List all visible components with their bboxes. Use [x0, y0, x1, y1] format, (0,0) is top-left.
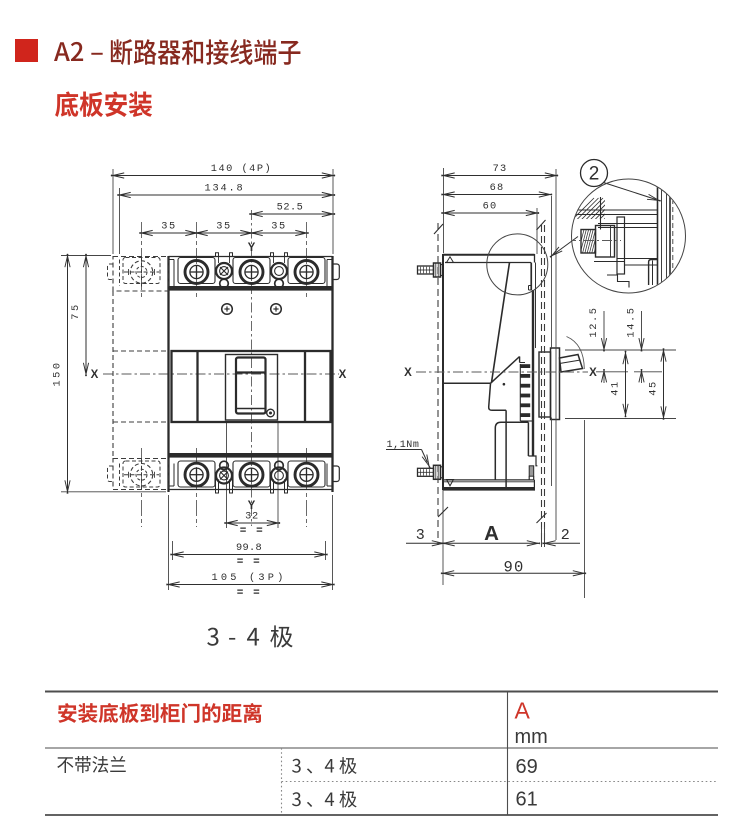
svg-text:A: A [515, 698, 531, 724]
svg-text:A: A [484, 522, 499, 545]
svg-text:32: 32 [245, 511, 259, 523]
svg-text:140 (4P): 140 (4P) [211, 163, 272, 175]
svg-text:14.5: 14.5 [626, 306, 638, 337]
svg-text:45: 45 [648, 380, 660, 396]
svg-text:3: 3 [416, 527, 427, 544]
svg-text:= =: = = [240, 526, 265, 538]
svg-text:mm: mm [515, 726, 548, 748]
svg-text:X: X [91, 369, 99, 381]
svg-text:150: 150 [52, 360, 64, 386]
svg-text:2: 2 [589, 164, 600, 185]
svg-text:X: X [404, 367, 412, 379]
svg-text:90: 90 [503, 559, 524, 577]
svg-text:134.8: 134.8 [205, 183, 245, 195]
svg-text:41: 41 [610, 380, 622, 396]
svg-text:73: 73 [493, 163, 508, 175]
svg-text:69: 69 [516, 756, 538, 778]
svg-text:60: 60 [483, 201, 498, 213]
svg-text:52.5: 52.5 [277, 202, 304, 214]
svg-text:Y: Y [248, 242, 256, 254]
svg-text:75: 75 [70, 302, 82, 319]
svg-text:X: X [339, 369, 347, 381]
svg-text:2: 2 [561, 527, 572, 544]
svg-text:= =: = = [237, 557, 262, 569]
svg-text:35: 35 [161, 221, 177, 233]
svg-text:35: 35 [216, 221, 232, 233]
svg-text:Y: Y [248, 500, 256, 512]
svg-text:= =: = = [237, 588, 262, 600]
svg-text:99.8: 99.8 [236, 542, 262, 554]
svg-text:105 (3P): 105 (3P) [211, 572, 286, 584]
svg-text:35: 35 [271, 221, 287, 233]
svg-text:61: 61 [516, 789, 538, 811]
svg-text:68: 68 [490, 182, 505, 194]
svg-text:X: X [589, 367, 597, 379]
svg-text:12.5: 12.5 [588, 306, 600, 337]
